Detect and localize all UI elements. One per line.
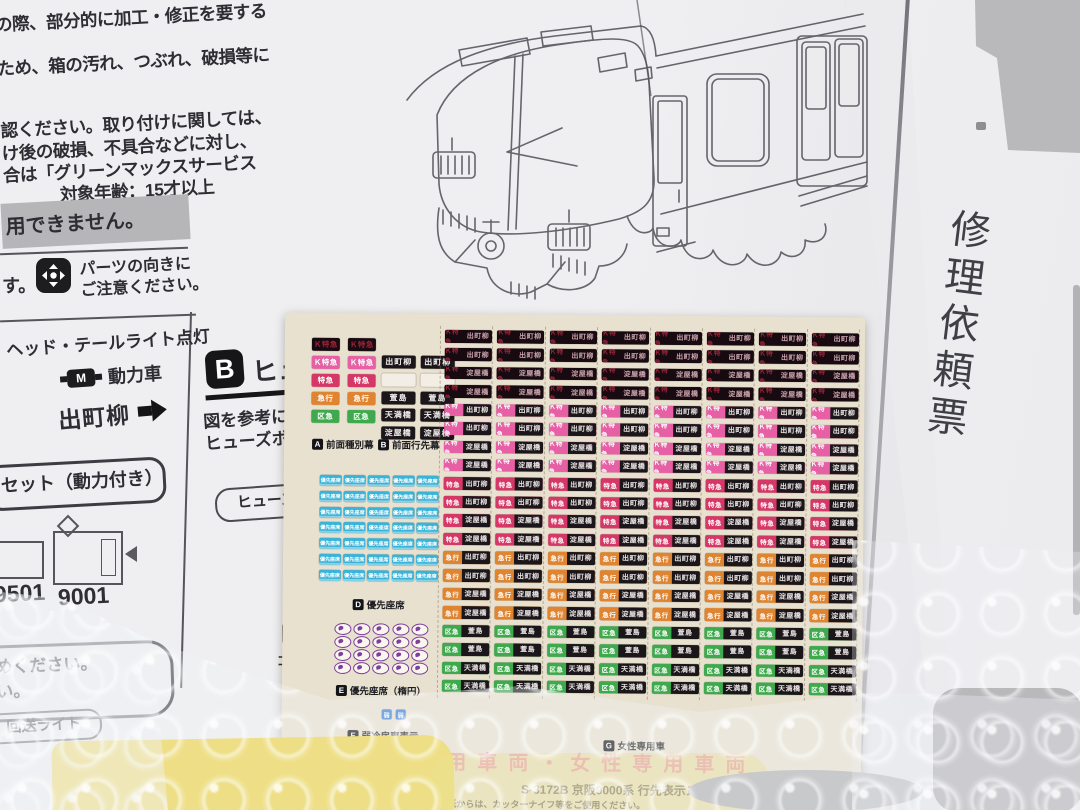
side-rollsign-sticker: Ｋ特急淀屋橋 [707,369,754,382]
arrow-bar [137,406,152,417]
rollsign-type: Ｋ特急 [445,348,464,361]
side-rollsign-sticker: Ｋ特急淀屋橋 [706,443,753,456]
rollsign-type: 急行 [495,607,514,620]
rollsign-type: Ｋ特急 [602,368,621,381]
rollsign-type: 特急 [548,533,567,546]
rollsign-destination: 淀屋橋 [462,588,490,601]
side-rollsign-sticker: 特急出町柳 [496,478,543,491]
rollsign-destination: 淀屋橋 [724,609,752,622]
rollsign-type: Ｋ特急 [601,423,620,436]
side-rollsign-sticker: 特急出町柳 [758,480,805,493]
rollsign-destination: 淀屋橋 [777,462,805,475]
side-rollsign-sticker: 急行淀屋橋 [652,590,699,603]
side-rollsign-sticker: 急行淀屋橋 [600,608,647,621]
rollsign-type: Ｋ特急 [811,462,830,475]
rollsign-destination: 出町柳 [831,352,859,365]
rollsign-destination: 淀屋橋 [619,608,647,621]
side-rollsign-sticker: 特急出町柳 [653,479,700,492]
rollsign-destination: 出町柳 [830,407,858,420]
side-rollsign-sticker: 急行出町柳 [548,552,595,565]
rollsign-destination: 萱島 [619,626,647,639]
rollsign-type: 急行 [757,572,776,585]
rollsign-type: 区急 [547,644,566,657]
rollsign-destination: 天満橋 [618,681,646,694]
rollsign-destination: 淀屋橋 [725,388,753,401]
rollsign-type: 区急 [600,626,619,639]
rollsign-destination: 出町柳 [463,477,491,490]
rollsign-destination: 淀屋橋 [514,607,542,620]
rollsign-destination: 淀屋橋 [515,441,543,454]
rollsign-destination: 出町柳 [568,405,596,418]
priority-seat-sticker: 優先座席 [416,555,438,566]
rollsign-type: 区急 [704,645,723,658]
side-rollsign-sticker: 区急萱島 [809,628,856,641]
rollsign-type: Ｋ特急 [811,388,830,401]
side-rollsign-sticker: 急行淀屋橋 [495,588,542,601]
rollsign-type: 区急 [599,644,618,657]
priority-seat-sticker: 優先座席 [392,475,414,486]
rollsign-type: 急行 [757,609,776,622]
diagram-inner-box [101,539,116,576]
rollsign-destination: 淀屋橋 [830,444,858,457]
rollsign-destination: 出町柳 [725,480,753,493]
rollsign-type: 特急 [496,478,515,491]
priority-seat-sticker: 優先座席 [344,507,366,518]
rollsign-destination: 淀屋橋 [724,517,752,530]
rollsign-destination: 出町柳 [831,333,859,346]
rollsign-type: 特急 [810,536,829,549]
rollsign-type: Ｋ特急 [812,333,831,346]
rollsign-type: 区急 [599,681,618,694]
rollsign-destination: 出町柳 [463,404,491,417]
side-rollsign-sticker: Ｋ特急出町柳 [759,333,806,346]
rollsign-destination: 出町柳 [620,405,648,418]
side-rollsign-sticker: 急行淀屋橋 [443,606,490,619]
rollsign-destination: 出町柳 [778,333,806,346]
rollsign-destination: 出町柳 [569,349,597,362]
side-rollsign-sticker: Ｋ特急出町柳 [497,404,544,417]
instruction-text-fragment: す。 [2,272,36,298]
front-type-sticker: Ｋ特急 [348,338,376,351]
rollsign-destination: 淀屋橋 [515,459,543,472]
rollsign-destination: 出町柳 [514,552,542,565]
side-rollsign-sticker: 急行淀屋橋 [495,607,542,620]
rollsign-destination: 出町柳 [567,478,595,491]
rollsign-type: Ｋ特急 [654,369,673,382]
rollsign-type: 急行 [495,570,514,583]
rollsign-destination: 萱島 [776,646,804,659]
rollsign-type: Ｋ特急 [654,424,673,437]
priority-seat-oval-sticker [392,623,409,635]
rollsign-destination: 出町柳 [829,499,857,512]
rollsign-destination: 淀屋橋 [568,441,596,454]
rollsign-destination: 淀屋橋 [514,588,542,601]
rollsign-destination: 出町柳 [829,481,857,494]
side-rollsign-sticker: 区急萱島 [495,625,542,638]
rollsign-type: Ｋ特急 [706,443,725,456]
rollsign-type: 区急 [704,664,723,677]
priority-seat-sticker: 優先座席 [367,570,389,581]
side-rollsign-sticker: 区急天満橋 [651,682,698,695]
rollsign-type: 区急 [495,643,514,656]
rollsign-type: Ｋ特急 [811,370,830,383]
side-rollsign-sticker: Ｋ特急出町柳 [759,351,806,364]
rollsign-destination: 淀屋橋 [776,591,804,604]
rollsign-destination: 出町柳 [619,571,647,584]
side-rollsign-sticker: 区急萱島 [809,646,856,659]
side-rollsign-sticker: Ｋ特急出町柳 [812,333,859,346]
side-rollsign-sticker: 急行出町柳 [495,551,542,564]
side-rollsign-sticker: Ｋ特急淀屋橋 [653,461,700,474]
priority-seat-sticker: 優先座席 [416,523,438,534]
rollsign-type: 急行 [757,554,776,567]
front-type-sticker: 急行 [311,392,339,405]
rollsign-type: 急行 [548,552,567,565]
rollsign-type: 区急 [757,627,776,640]
rollsign-type: 区急 [495,625,514,638]
front-destination-sticker: 出町柳 [382,355,416,368]
side-rollsign-sticker: Ｋ特急出町柳 [497,330,544,343]
priority-seat-sticker: 優先座席 [391,570,413,581]
rollsign-destination: 天満橋 [566,681,594,694]
side-rollsign-sticker: 特急淀屋橋 [548,533,595,546]
side-rollsign-sticker: 急行出町柳 [757,554,804,567]
side-rollsign-sticker: Ｋ特急出町柳 [445,348,492,361]
side-rollsign-sticker: 区急萱島 [495,643,542,656]
rollsign-type: Ｋ特急 [811,407,830,420]
side-rollsign-sticker: 急行出町柳 [495,570,542,583]
rollsign-type: Ｋ特急 [602,350,621,363]
rollsign-destination: 出町柳 [726,332,754,345]
rollsign-type: 区急 [704,682,723,695]
side-rollsign-sticker: 特急淀屋橋 [758,517,805,530]
rollsign-destination: 淀屋橋 [463,385,491,398]
side-rollsign-sticker: Ｋ特急淀屋橋 [706,387,753,400]
side-rollsign-sticker: 特急出町柳 [601,497,648,510]
rollsign-destination: 出町柳 [776,554,804,567]
priority-seat-oval-sticker [353,662,370,674]
rollsign-destination: 出町柳 [516,423,544,436]
side-rollsign-sticker: Ｋ特急淀屋橋 [811,462,858,475]
rollsign-destination: 天満橋 [513,662,541,675]
rollsign-destination: 淀屋橋 [672,516,700,529]
side-rollsign-sticker: Ｋ特急淀屋橋 [811,370,858,383]
rollsign-type: 特急 [548,515,567,528]
section-label: 前面行先幕 [392,437,440,451]
rollsign-destination: 出町柳 [778,351,806,364]
side-rollsign-sticker: 区急萱島 [547,625,594,638]
rollsign-type: Ｋ特急 [707,332,726,345]
rollsign-destination: 淀屋橋 [672,461,700,474]
front-type-sticker: 特急 [348,374,376,387]
rollsign-type: Ｋ特急 [602,386,621,399]
rollsign-type: 急行 [809,591,828,604]
rollsign-destination: 出町柳 [672,479,700,492]
rollsign-destination: 淀屋橋 [568,386,596,399]
rollsign-destination: 淀屋橋 [619,589,647,602]
rollsign-destination: 出町柳 [724,498,752,511]
rollsign-destination: 淀屋橋 [516,367,544,380]
side-rollsign-sticker: 急行淀屋橋 [547,589,594,602]
side-rollsign-sticker: Ｋ特急出町柳 [706,406,753,419]
rollsign-type: Ｋ特急 [549,460,568,473]
side-rollsign-sticker: 区急萱島 [757,646,804,659]
rollsign-destination: 萱島 [461,625,489,638]
priority-seat-sticker: 優先座席 [320,491,342,502]
priority-seat-oval-sticker [334,636,351,648]
side-rollsign-sticker: 急行淀屋橋 [443,588,490,601]
side-rollsign-sticker: 急行出町柳 [757,572,804,585]
rollsign-destination: 出町柳 [464,348,492,361]
priority-seat-oval-sticker [373,636,390,648]
side-rollsign-sticker: 特急出町柳 [706,480,753,493]
rollsign-type: 区急 [809,665,828,678]
rollsign-destination: 天満橋 [723,664,751,677]
priority-seat-sticker: 優先座席 [392,523,414,534]
section-a-label: A前面種別幕 [312,437,374,452]
rollsign-type: Ｋ特急 [549,423,568,436]
rollsign-destination: 淀屋橋 [621,387,649,400]
rollsign-destination: 出町柳 [777,499,805,512]
motor-icon-letter: M [66,368,95,388]
rollsign-type: 急行 [443,551,462,564]
priority-seat-oval-sticker [334,662,351,674]
rollsign-destination: 淀屋橋 [619,534,647,547]
rollsign-type: Ｋ特急 [550,331,569,344]
rollsign-type: 特急 [653,479,672,492]
rollsign-destination: 天満橋 [828,683,856,696]
rollsign-type: 急行 [652,608,671,621]
rollsign-type: 区急 [756,683,775,696]
side-rollsign-sticker: 急行出町柳 [600,571,647,584]
rollsign-destination: 出町柳 [777,480,805,493]
rollsign-destination: 淀屋橋 [673,387,701,400]
rollsign-type: Ｋ特急 [497,367,516,380]
rollsign-destination: 淀屋橋 [620,442,648,455]
rollsign-type: Ｋ特急 [444,422,463,435]
rollsign-type: Ｋ特急 [444,404,463,417]
rollsign-type: 急行 [705,572,724,585]
rollsign-destination: 天満橋 [461,662,489,675]
priority-seat-sticker: 優先座席 [343,554,365,565]
rollsign-type: 区急 [809,646,828,659]
side-rollsign-sticker: 区急天満橋 [809,665,856,678]
rollsign-type: Ｋ特急 [549,441,568,454]
side-rollsign-sticker: 急行淀屋橋 [705,590,752,603]
rollsign-destination: 出町柳 [462,496,490,509]
rollsign-destination: 淀屋橋 [778,388,806,401]
rollsign-destination: 淀屋橋 [621,368,649,381]
train-diagram-car-right [53,531,123,585]
side-rollsign-sticker: 急行出町柳 [810,573,857,586]
rollsign-destination: 出町柳 [620,497,648,510]
rollsign-type: 区急 [652,663,671,676]
side-rollsign-sticker: 区急萱島 [442,643,489,656]
background-mark [976,122,986,130]
rollsign-type: Ｋ特急 [707,351,726,364]
rollsign-type: 特急 [810,517,829,530]
side-rollsign-sticker: Ｋ特急淀屋橋 [549,386,596,399]
rollsign-type: 特急 [443,514,462,527]
rollsign-destination: 出町柳 [725,424,753,437]
front-type-sticker: Ｋ特急 [312,338,340,351]
side-rollsign-sticker: Ｋ特急淀屋橋 [811,444,858,457]
priority-seat-sticker: 優先座席 [368,538,390,549]
side-rollsign-sticker: Ｋ特急出町柳 [444,404,491,417]
rollsign-destination: 淀屋橋 [725,443,753,456]
rollsign-type: 特急 [548,497,567,510]
side-rollsign-sticker: 区急萱島 [704,627,751,640]
rollsign-type: 区急 [809,628,828,641]
rollsign-type: Ｋ特急 [601,460,620,473]
rollsign-destination: 出町柳 [567,497,595,510]
priority-seat-sticker: 優先座席 [368,475,390,486]
rollsign-destination: 出町柳 [621,350,649,363]
side-rollsign-sticker: Ｋ特急淀屋橋 [549,368,596,381]
side-rollsign-sticker: 区急萱島 [652,626,699,639]
rollsign-destination: 淀屋橋 [566,607,594,620]
rollsign-destination: 出町柳 [672,498,700,511]
side-rollsign-sticker: Ｋ特急出町柳 [497,422,544,435]
side-rollsign-sticker: Ｋ特急出町柳 [654,424,701,437]
side-rollsign-sticker: Ｋ特急出町柳 [549,404,596,417]
rollsign-type: Ｋ特急 [550,349,569,362]
side-rollsign-sticker: Ｋ特急淀屋橋 [759,388,806,401]
section-label: 前面種別幕 [326,437,374,451]
side-rollsign-sticker: 特急淀屋橋 [705,516,752,529]
rollsign-destination: 出町柳 [514,570,542,583]
side-rollsign-sticker: 急行淀屋橋 [652,608,699,621]
rollsign-type: 急行 [809,609,828,622]
section-badge: D [353,599,364,610]
side-rollsign-sticker: 急行出町柳 [548,570,595,583]
priority-seat-sticker: 優先座席 [416,570,438,581]
side-rollsign-sticker: Ｋ特急淀屋橋 [549,441,596,454]
front-type-sticker: 特急 [312,374,340,387]
priority-seat-sticker: 優先座席 [367,554,389,565]
priority-seat-sticker: 優先座席 [344,491,366,502]
side-rollsign-sticker: Ｋ特急淀屋橋 [706,461,753,474]
priority-seat-sticker: 優先座席 [368,523,390,534]
side-rollsign-sticker: 特急淀屋橋 [810,536,857,549]
rollsign-destination: 出町柳 [516,404,544,417]
priority-seat-sticker: 優先座席 [392,539,414,550]
rollsign-type: Ｋ特急 [496,459,515,472]
side-rollsign-sticker: Ｋ特急淀屋橋 [444,385,491,398]
side-rollsign-sticker: 特急淀屋橋 [653,534,700,547]
cut-guide-line [751,329,755,701]
rollsign-type: 急行 [653,553,672,566]
side-rollsign-sticker: Ｋ特急淀屋橋 [602,386,649,399]
priority-seat-sticker: 優先座席 [343,522,365,533]
rollsign-type: 急行 [600,571,619,584]
rollsign-type: Ｋ特急 [549,386,568,399]
rollsign-destination: 淀屋橋 [515,515,543,528]
rollsign-destination: 萱島 [723,645,751,658]
side-rollsign-sticker: 特急淀屋橋 [758,535,805,548]
side-rollsign-sticker: 急行淀屋橋 [757,590,804,603]
side-rollsign-sticker: Ｋ特急出町柳 [759,425,806,438]
rollsign-destination: 出町柳 [619,552,647,565]
cut-guide-line [594,327,598,699]
side-rollsign-sticker: Ｋ特急出町柳 [602,350,649,363]
rollsign-type: Ｋ特急 [759,388,778,401]
rollsign-destination: 淀屋橋 [463,441,491,454]
side-rollsign-sticker: Ｋ特急出町柳 [445,330,492,343]
rollsign-type: Ｋ特急 [759,406,778,419]
rollsign-type: Ｋ特急 [497,386,516,399]
side-rollsign-sticker: Ｋ特急出町柳 [550,331,597,344]
side-rollsign-sticker: Ｋ特急出町柳 [602,331,649,344]
side-rollsign-sticker: Ｋ特急淀屋橋 [445,367,492,380]
priority-seat-sticker: 優先座席 [368,507,390,518]
side-rollsign-sticker: 急行淀屋橋 [705,608,752,621]
side-rollsign-sticker: 区急天満橋 [547,662,594,675]
rollsign-type: Ｋ特急 [602,331,621,344]
rollsign-type: Ｋ特急 [549,404,568,417]
rollsign-type: 急行 [810,573,829,586]
side-rollsign-sticker: 特急淀屋橋 [705,535,752,548]
rollsign-destination: 出町柳 [568,423,596,436]
rollsign-type: Ｋ特急 [497,349,516,362]
rollsign-type: 区急 [652,626,671,639]
side-rollsign-sticker: 急行出町柳 [600,552,647,565]
rollsign-type: Ｋ特急 [497,330,516,343]
rollsign-type: 急行 [600,608,619,621]
rollsign-type: 特急 [601,479,620,492]
rollsign-destination: 出町柳 [462,551,490,564]
side-rollsign-sticker: Ｋ特急淀屋橋 [758,462,805,475]
side-rollsign-sticker: 特急出町柳 [444,477,491,490]
rollsign-type: 急行 [548,570,567,583]
side-rollsign-sticker: Ｋ特急出町柳 [549,423,596,436]
rollsign-type: 急行 [495,588,514,601]
motor-car-label: 動力車 [107,359,163,389]
rollsign-destination: 出町柳 [673,406,701,419]
side-rollsign-sticker: 急行出町柳 [653,553,700,566]
cut-guide-line [699,328,703,700]
side-rollsign-sticker: 特急出町柳 [810,499,857,512]
rollsign-type: Ｋ特急 [654,387,673,400]
rollsign-type: Ｋ特急 [811,444,830,457]
side-rollsign-sticker: Ｋ特急淀屋橋 [602,368,649,381]
destination-label: 出町柳 [57,396,132,436]
side-rollsign-sticker: 区急萱島 [547,644,594,657]
rollsign-destination: 出町柳 [621,331,649,344]
side-rollsign-sticker: Ｋ特急出町柳 [497,349,544,362]
rollsign-type: 急行 [810,554,829,567]
photo-scene: { "colors":{ "led_bg":"#170b11","led_tex… [0,0,1080,810]
rollsign-type: Ｋ特急 [706,461,725,474]
rollsign-destination: 淀屋橋 [462,533,490,546]
side-rollsign-sticker: 区急天満橋 [599,681,646,694]
rollsign-type: 特急 [444,496,463,509]
side-rollsign-sticker: Ｋ特急淀屋橋 [497,386,544,399]
priority-seat-sticker: 優先座席 [319,570,341,581]
rollsign-destination: 天満橋 [775,664,803,677]
rollsign-type: 区急 [442,661,461,674]
side-rollsign-sticker: 急行淀屋橋 [809,609,856,622]
side-rollsign-sticker: Ｋ特急淀屋橋 [601,442,648,455]
rollsign-destination: 萱島 [671,645,699,658]
rollsign-type: Ｋ特急 [759,333,778,346]
rollsign-type: 特急 [706,480,725,493]
priority-seat-oval-sticker [353,636,370,648]
side-rollsign-sticker: 急行淀屋橋 [809,591,856,604]
side-rollsign-sticker: 区急萱島 [600,626,647,639]
rollsign-type: 特急 [548,478,567,491]
side-rollsign-sticker: 急行出町柳 [705,572,752,585]
